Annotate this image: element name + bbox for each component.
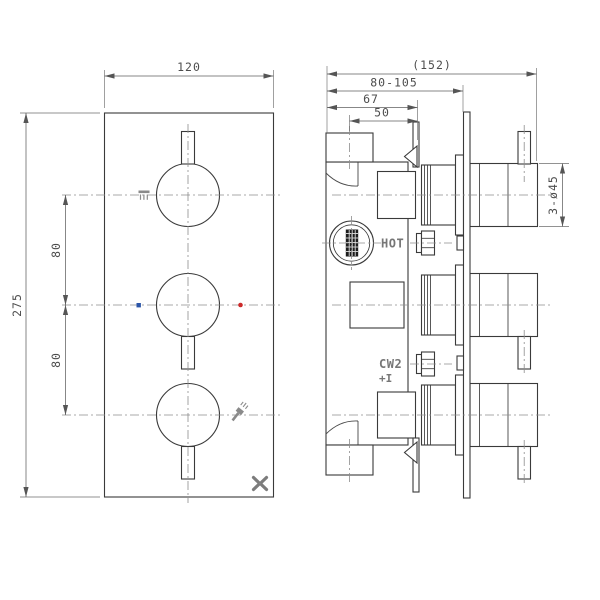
dim-body-label: 67 — [363, 92, 379, 106]
dim-height-label: 275 — [10, 293, 24, 317]
plate-boss-lower — [457, 356, 464, 370]
valve-drawing-svg: 120 275 80 80 — [0, 0, 600, 600]
dim-overall-label: (152) — [412, 58, 452, 72]
technical-drawing-canvas: 120 275 80 80 — [0, 0, 600, 600]
hot-hex-fitting — [410, 231, 452, 255]
dim-width: 120 — [105, 60, 274, 108]
hot-label: HOT — [381, 237, 404, 251]
cold-indicator-dot — [137, 303, 141, 307]
side-view: (152) 80-105 67 50 3-ø45 HOT CW2 +I — [322, 58, 569, 498]
overhead-shower-icon — [139, 191, 150, 200]
plate-boss-upper — [457, 236, 464, 250]
cw2-label: CW2 — [379, 357, 402, 371]
dim-spacing-top-label: 80 — [49, 242, 63, 258]
station-top — [422, 132, 538, 236]
valve-body — [326, 122, 419, 492]
dim-width-label: 120 — [177, 60, 201, 74]
dim-knob-label: 3-ø45 — [546, 175, 560, 215]
aux-label: +I — [379, 372, 392, 385]
front-view: 120 275 80 80 — [10, 60, 283, 503]
cw2-hex-fitting — [410, 352, 452, 376]
hot-indicator-dot — [238, 303, 243, 308]
dim-port-label: 50 — [374, 106, 390, 120]
station-middle — [422, 265, 538, 369]
dim-adjust-label: 80-105 — [370, 76, 418, 90]
station-bottom — [422, 375, 538, 479]
dim-spacing-bottom-label: 80 — [49, 352, 63, 368]
